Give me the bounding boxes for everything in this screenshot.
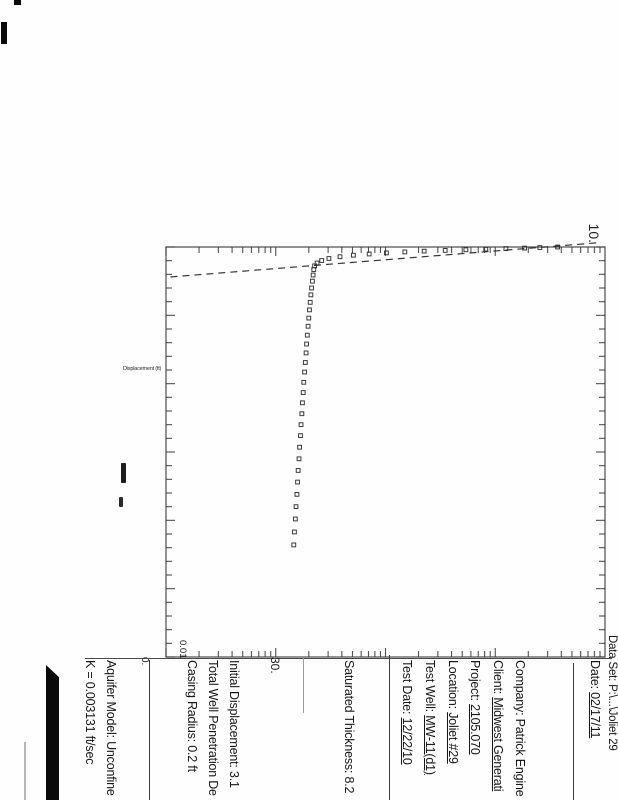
scan-smudge — [1, 22, 7, 44]
location-label: Location: — [446, 660, 460, 709]
initial-displacement-label: Initial Displacement: — [227, 660, 241, 768]
client-label: Client: — [491, 660, 505, 694]
test-well-line: Test Well: MW-11(d1) — [421, 660, 437, 800]
aquifer-model-line: Aquifer Model: Unconfine — [102, 660, 118, 800]
total-penetration-line: Total Well Penetration De — [204, 660, 220, 800]
test-date-label: Test Date: — [400, 660, 414, 714]
scanned-document: 10. Displacement (ft) 0.01 0. Data Set: … — [0, 0, 618, 800]
saturated-thickness-value: 8.2 — [342, 776, 356, 793]
date-line: Date: 02/17/11 — [586, 660, 602, 800]
axis-title-fragment — [119, 497, 123, 507]
hydraulic-conductivity-line: K = 0.003131 ft/sec — [81, 660, 97, 800]
data-set-value: P:\...\Joliet 29 — [606, 684, 618, 750]
scan-artifact-line — [24, 742, 26, 800]
panel-rule — [149, 660, 150, 800]
scan-artifact-bar — [46, 665, 59, 800]
k-label: K = — [83, 660, 97, 679]
company-line: Company: Patrick Engine — [511, 660, 527, 800]
aquifer-model-value: Unconfine — [104, 741, 118, 796]
test-well-label: Test Well: — [423, 660, 437, 712]
total-penetration-label: Total Well Penetration De — [206, 660, 220, 796]
y-axis-top-tick-label: 10. — [586, 206, 602, 243]
project-line: Project: 2105.070 — [466, 660, 482, 800]
data-set-line: Data Set: P:\...\Joliet 29 — [602, 635, 618, 800]
initial-displacement-value: 3.1 — [227, 771, 241, 788]
landscape-page: 10. Displacement (ft) 0.01 0. Data Set: … — [0, 0, 618, 800]
company-label: Company: — [513, 660, 527, 715]
project-label: Project: — [468, 660, 482, 701]
date-value: 02/17/11 — [588, 692, 602, 738]
panel-rule — [573, 663, 574, 800]
casing-radius-value: 0.2 ft — [185, 745, 199, 772]
tick-label-fragment-001: 0.01 — [177, 640, 188, 659]
location-value: Joliet #29 — [446, 712, 460, 764]
panel-text-fragment: 30. — [268, 657, 282, 674]
client-value: Midwest Generati — [491, 697, 505, 791]
axis-title-fragment — [121, 463, 126, 483]
panel-rule — [389, 655, 390, 800]
test-well-value: MW-11(d1) — [423, 715, 437, 775]
aquifer-model-label: Aquifer Model: — [104, 660, 118, 738]
y-axis-title: Displacement (ft) — [123, 366, 167, 378]
panel-border — [85, 658, 612, 659]
k-value: 0.003131 ft/sec — [83, 682, 97, 764]
panel-rule — [303, 658, 304, 713]
location-line: Location: Joliet #29 — [444, 660, 460, 800]
casing-radius-label: Casing Radius: — [185, 660, 199, 742]
initial-displacement-line: Initial Displacement: 3.1 — [225, 660, 241, 800]
saturated-thickness-label: Saturated Thickness: — [342, 660, 356, 773]
saturated-thickness-line: Saturated Thickness: 8.2 — [340, 660, 356, 800]
client-line: Client: Midwest Generati — [489, 660, 505, 800]
test-date-value: 12/22/10 — [400, 718, 414, 765]
project-value: 2105.070 — [468, 704, 482, 755]
date-label: Date: — [588, 660, 602, 689]
test-date-line: Test Date: 12/22/10 — [398, 660, 414, 800]
data-set-label: Data Set: — [606, 635, 618, 681]
scan-smudge — [14, 0, 21, 5]
company-value: Patrick Engine — [513, 719, 527, 797]
casing-radius-line: Casing Radius: 0.2 ft — [183, 660, 199, 800]
